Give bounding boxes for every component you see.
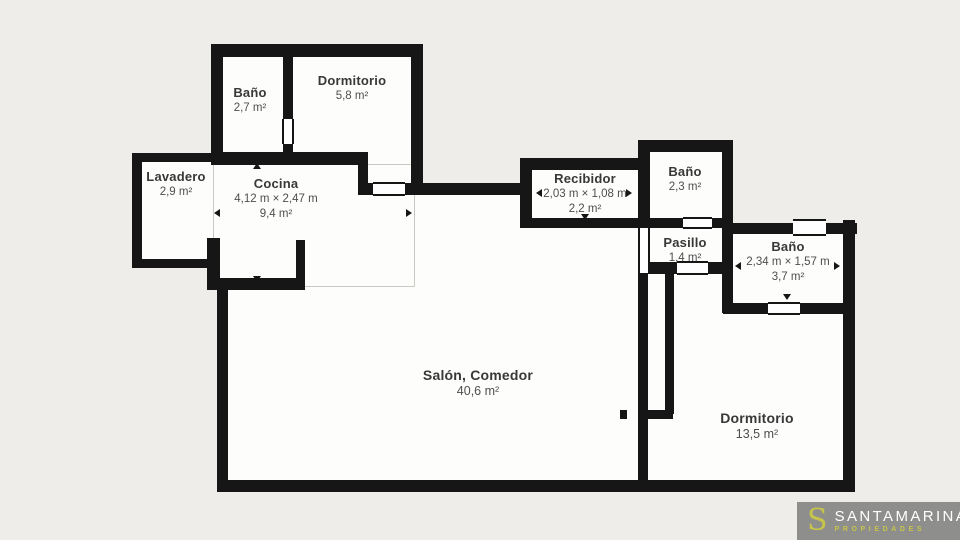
wall <box>217 480 855 492</box>
recibidor-width-arrow-right <box>626 189 632 197</box>
room-area: 1,4 m² <box>663 251 706 265</box>
wall <box>638 140 650 228</box>
room-area: 5,8 m² <box>318 89 386 103</box>
door-marker <box>683 217 712 229</box>
room-name: Baño <box>746 239 829 254</box>
wall <box>211 152 367 165</box>
wall <box>132 259 216 268</box>
room-dimensions: 2,03 m × 1,08 m <box>543 187 626 201</box>
wall <box>217 282 228 492</box>
room-name: Recibidor <box>543 171 626 186</box>
room-label-bano-tl: Baño 2,7 m² <box>233 85 266 115</box>
room-name: Dormitorio <box>318 73 386 88</box>
door-marker <box>638 228 650 273</box>
logo-tagline-text: PROPIEDADES <box>835 525 960 534</box>
room-area: 2,7 m² <box>233 101 266 115</box>
cocina-height-arrow-down <box>253 276 261 282</box>
cocina-width-arrow-left <box>214 209 220 217</box>
door-marker <box>282 119 294 144</box>
room-name: Lavadero <box>146 169 205 184</box>
door-marker <box>768 302 800 315</box>
room-area: 13,5 m² <box>720 427 794 441</box>
room-area: 40,6 m² <box>423 384 533 398</box>
room-name: Cocina <box>234 176 317 191</box>
bano-suite-height-arrow-down <box>783 294 791 300</box>
room-label-cocina: Cocina 4,12 m × 2,47 m 9,4 m² <box>234 176 317 221</box>
room-label-salon: Salón, Comedor 40,6 m² <box>423 367 533 398</box>
cocina-height-arrow-up <box>253 163 261 169</box>
wall <box>638 410 673 419</box>
room-label-dormitorio-tl: Dormitorio 5,8 m² <box>318 73 386 103</box>
wall <box>843 220 855 492</box>
wall <box>638 140 733 152</box>
room-name: Baño <box>668 164 701 179</box>
room-dimensions: 2,34 m × 1,57 m <box>746 255 829 269</box>
room-area: 3,7 m² <box>746 270 829 284</box>
entry-door-marker <box>373 182 405 196</box>
window-marker <box>793 219 826 236</box>
room-area: 9,4 m² <box>234 207 317 221</box>
room-label-recibidor: Recibidor 2,03 m × 1,08 m 2,2 m² <box>543 171 626 216</box>
room-label-dormitorio-main: Dormitorio 13,5 m² <box>720 410 794 441</box>
wall <box>638 272 648 492</box>
logo-initial: S <box>807 506 828 536</box>
room-label-lavadero: Lavadero 2,9 m² <box>146 169 205 199</box>
room-name: Baño <box>233 85 266 100</box>
room-label-bano-suite: Baño 2,34 m × 1,57 m 3,7 m² <box>746 239 829 284</box>
wall <box>211 44 421 57</box>
room-area: 2,3 m² <box>668 180 701 194</box>
room-label-bano-pasillo: Baño 2,3 m² <box>668 164 701 194</box>
room-name: Salón, Comedor <box>423 367 533 383</box>
wall <box>132 153 214 162</box>
room-name: Dormitorio <box>720 410 794 426</box>
wall <box>283 55 293 162</box>
wall <box>211 44 223 165</box>
floor-plan: Baño 2,7 m² Dormitorio 5,8 m² Lavadero 2… <box>0 0 960 540</box>
cocina-width-arrow-right <box>406 209 412 217</box>
recibidor-height-arrow-up <box>581 162 589 168</box>
room-dimensions: 4,12 m × 2,47 m <box>234 192 317 206</box>
bano-suite-width-arrow-left <box>735 262 741 270</box>
room-area: 2,2 m² <box>543 202 626 216</box>
logo-brand-text: SANTAMARINA <box>835 509 960 525</box>
wall <box>620 410 627 419</box>
room-label-pasillo: Pasillo 1,4 m² <box>663 235 706 265</box>
room-name: Pasillo <box>663 235 706 250</box>
bano-suite-width-arrow-right <box>834 262 840 270</box>
wall <box>665 274 674 414</box>
recibidor-width-arrow-left <box>536 189 542 197</box>
wall <box>132 153 142 268</box>
room-area: 2,9 m² <box>146 185 205 199</box>
wall <box>411 44 423 190</box>
bano-suite-height-arrow-up <box>783 226 791 232</box>
wall <box>520 158 640 170</box>
agency-logo: S SANTAMARINA PROPIEDADES <box>797 502 960 540</box>
